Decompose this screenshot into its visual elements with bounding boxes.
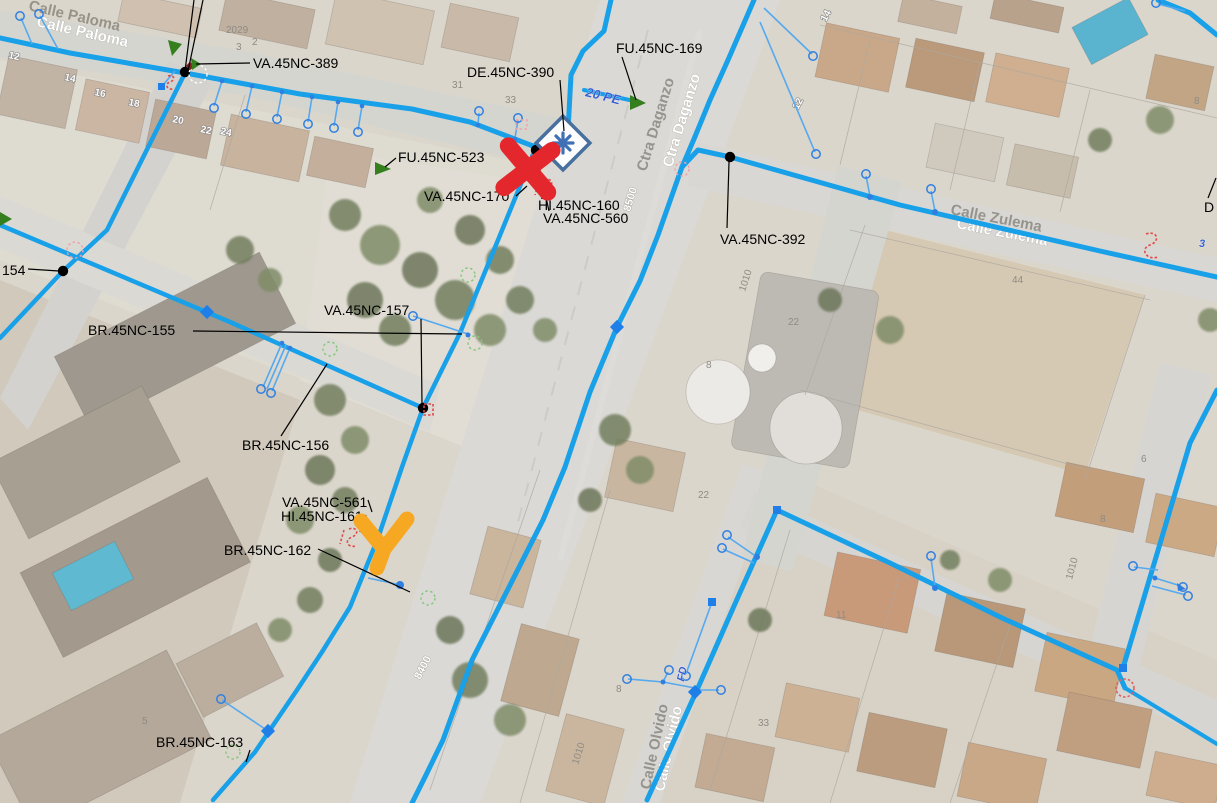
- asset-label-va-45nc-389: VA.45NC-389: [253, 55, 339, 71]
- map-canvas[interactable]: Calle Paloma Calle Paloma Ctra Daganzo C…: [0, 0, 1217, 803]
- svg-text:11: 11: [836, 610, 847, 621]
- svg-text:8: 8: [1100, 514, 1106, 525]
- junction-node[interactable]: [158, 83, 165, 90]
- svg-text:33: 33: [758, 718, 770, 729]
- asset-label-br-45nc-162: BR.45NC-162: [224, 542, 311, 558]
- junction-node[interactable]: [1119, 664, 1127, 672]
- svg-text:8: 8: [1194, 96, 1200, 107]
- asset-label-hi-45nc-161: HI.45NC-161: [281, 508, 363, 524]
- svg-text:2029: 2029: [226, 25, 249, 36]
- svg-text:31: 31: [452, 80, 464, 91]
- asset-label-va-45nc-560: VA.45NC-560: [543, 210, 629, 226]
- svg-text:5: 5: [142, 716, 148, 727]
- junction-node[interactable]: [773, 506, 781, 514]
- svg-text:44: 44: [1012, 275, 1024, 286]
- junction-node[interactable]: [708, 598, 716, 606]
- svg-text:22: 22: [698, 490, 710, 501]
- asset-label-br-45nc-163: BR.45NC-163: [156, 734, 243, 750]
- svg-text:33: 33: [505, 95, 517, 106]
- svg-text:2: 2: [252, 37, 258, 48]
- valve-node[interactable]: [58, 266, 68, 276]
- valve-node[interactable]: [725, 152, 735, 162]
- svg-text:8: 8: [616, 684, 622, 695]
- asset-label-br-45nc-155: BR.45NC-155: [88, 322, 175, 338]
- asset-label-154: 154: [2, 262, 26, 278]
- asset-label-fu-45nc-169: FU.45NC-169: [616, 40, 703, 56]
- svg-text:22: 22: [788, 317, 800, 328]
- asset-label-br-45nc-156: BR.45NC-156: [242, 437, 329, 453]
- asset-label-fu-45nc-523: FU.45NC-523: [398, 149, 485, 165]
- pipe-count-label: 3: [1199, 238, 1205, 250]
- asset-label-partial-d: D: [1204, 199, 1214, 215]
- svg-text:6: 6: [1141, 454, 1147, 465]
- valve-node[interactable]: [418, 403, 428, 413]
- svg-text:8: 8: [706, 360, 712, 371]
- asset-label-va-45nc-157: VA.45NC-157: [324, 302, 410, 318]
- asset-label-va-45nc-392: VA.45NC-392: [720, 231, 806, 247]
- asset-label-de-45nc-390: DE.45NC-390: [467, 64, 554, 80]
- svg-text:3: 3: [236, 42, 242, 53]
